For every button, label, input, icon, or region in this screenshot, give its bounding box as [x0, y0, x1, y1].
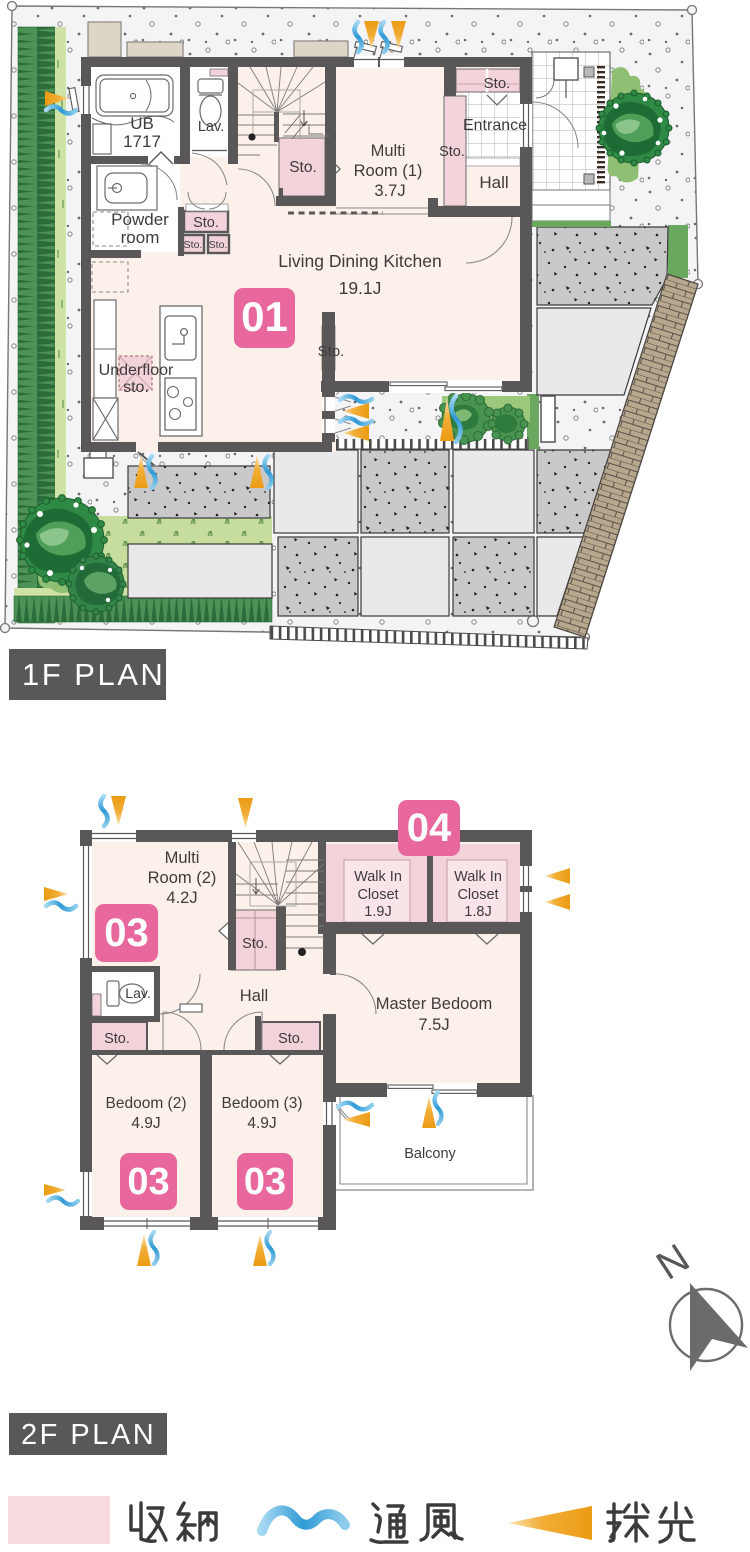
- svg-text:Closet: Closet: [457, 887, 498, 903]
- svg-text:Multi: Multi: [165, 849, 200, 867]
- svg-text:sto.: sto.: [123, 379, 149, 396]
- svg-text:Sto.: Sto.: [209, 239, 228, 251]
- svg-text:Room (1): Room (1): [354, 162, 423, 180]
- svg-text:19.1J: 19.1J: [339, 278, 382, 298]
- svg-text:Underfloor: Underfloor: [99, 362, 174, 379]
- svg-text:Walk In: Walk In: [454, 869, 502, 885]
- svg-text:Hall: Hall: [240, 987, 268, 1005]
- svg-text:Hall: Hall: [479, 173, 508, 192]
- svg-text:4.9J: 4.9J: [247, 1115, 276, 1132]
- svg-text:Sto.: Sto.: [439, 144, 465, 160]
- svg-text:Sto.: Sto.: [318, 343, 345, 360]
- svg-text:Lav.: Lav.: [198, 119, 224, 135]
- svg-text:7.5J: 7.5J: [418, 1016, 449, 1034]
- svg-text:Sto.: Sto.: [184, 239, 203, 251]
- svg-text:4.2J: 4.2J: [166, 889, 197, 907]
- svg-text:Sto.: Sto.: [484, 75, 511, 92]
- svg-text:Sto.: Sto.: [104, 1031, 130, 1047]
- svg-text:Powder: Powder: [111, 210, 169, 229]
- svg-text:Sto.: Sto.: [242, 936, 268, 952]
- svg-text:4.9J: 4.9J: [131, 1115, 160, 1132]
- svg-text:01: 01: [241, 293, 288, 340]
- svg-text:1.9J: 1.9J: [364, 904, 391, 920]
- svg-text:Walk In: Walk In: [354, 869, 402, 885]
- svg-text:03: 03: [104, 911, 149, 955]
- svg-text:Lav.: Lav.: [125, 985, 150, 1001]
- svg-text:Multi: Multi: [371, 142, 406, 160]
- svg-text:Balcony: Balcony: [404, 1146, 456, 1162]
- svg-text:Entrance: Entrance: [463, 117, 527, 134]
- svg-text:1717: 1717: [123, 132, 161, 151]
- svg-text:Sto.: Sto.: [193, 215, 219, 231]
- svg-text:3.7J: 3.7J: [374, 182, 405, 200]
- svg-text:2F PLAN: 2F PLAN: [21, 1419, 156, 1451]
- svg-text:1.8J: 1.8J: [464, 904, 491, 920]
- svg-text:03: 03: [244, 1161, 286, 1203]
- svg-text:Bedoom (2): Bedoom (2): [106, 1095, 187, 1112]
- svg-text:1F PLAN: 1F PLAN: [22, 657, 165, 692]
- svg-text:Living Dining Kitchen: Living Dining Kitchen: [278, 251, 441, 271]
- svg-text:Sto.: Sto.: [278, 1031, 304, 1047]
- svg-text:Sto.: Sto.: [289, 159, 317, 176]
- svg-text:Room (2): Room (2): [148, 869, 217, 887]
- svg-text:UB: UB: [130, 114, 154, 133]
- svg-text:room: room: [121, 228, 160, 247]
- svg-text:04: 04: [407, 806, 452, 850]
- svg-text:Master Bedoom: Master Bedoom: [376, 995, 492, 1013]
- svg-text:Bedoom (3): Bedoom (3): [222, 1095, 303, 1112]
- svg-text:Closet: Closet: [357, 887, 398, 903]
- svg-text:03: 03: [127, 1161, 169, 1203]
